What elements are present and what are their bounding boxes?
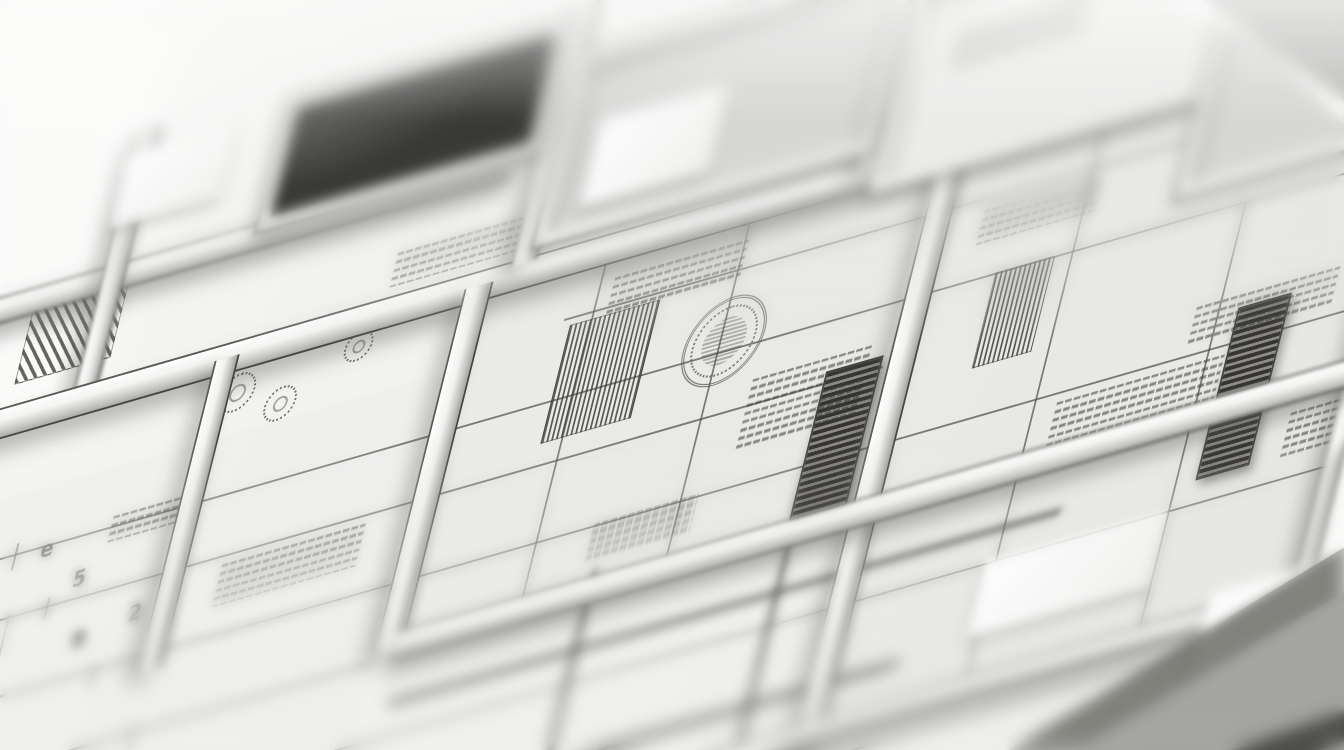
annotation-scribble: [948, 0, 1093, 75]
blueprint-photo: 5 2 B e: [0, 0, 1344, 750]
blueprint-plane: 5 2 B e: [0, 0, 1344, 750]
room-tint: [0, 373, 444, 750]
